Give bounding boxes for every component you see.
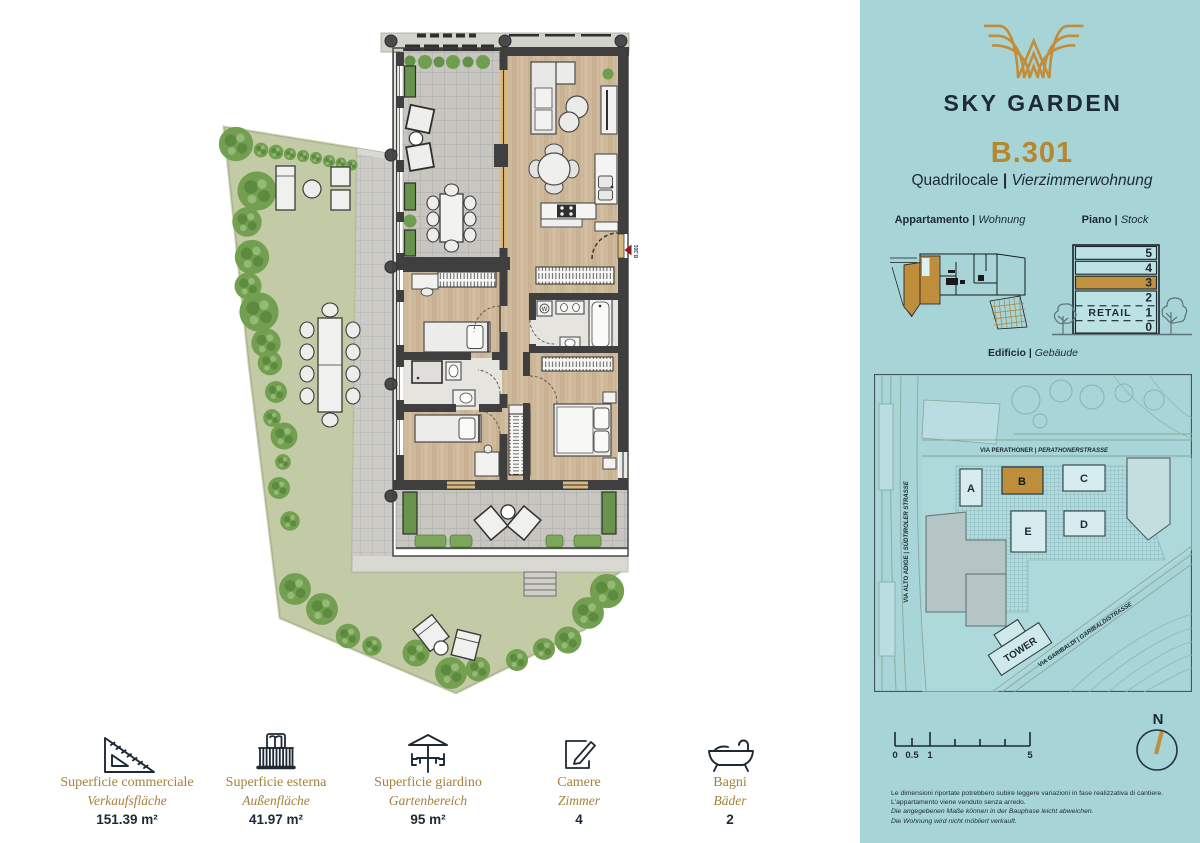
- svg-text:VIA PERATHONER | PERATHONERSTR: VIA PERATHONER | PERATHONERSTRASSE: [980, 448, 1109, 454]
- svg-text:E: E: [1024, 526, 1031, 538]
- svg-text:B.301: B.301: [634, 244, 640, 258]
- svg-text:0: 0: [892, 750, 897, 761]
- svg-text:5: 5: [1027, 750, 1033, 761]
- svg-text:0: 0: [1145, 320, 1152, 334]
- svg-text:D: D: [1080, 519, 1088, 531]
- svg-text:5: 5: [1145, 246, 1152, 260]
- svg-text:N: N: [1153, 711, 1164, 728]
- svg-text:B: B: [1018, 476, 1026, 488]
- svg-text:A: A: [967, 483, 975, 495]
- svg-text:C: C: [1080, 473, 1088, 485]
- svg-text:4: 4: [1145, 261, 1152, 275]
- svg-text:1: 1: [927, 750, 933, 761]
- svg-text:W: W: [542, 307, 548, 313]
- svg-text:RETAIL: RETAIL: [1088, 307, 1131, 319]
- svg-text:3: 3: [1145, 276, 1152, 290]
- svg-text:2: 2: [1145, 291, 1152, 305]
- svg-text:1: 1: [1145, 305, 1152, 319]
- svg-text:0.5: 0.5: [905, 750, 919, 761]
- svg-text:VIA ALTO ADIGE | SÜDTIROLER ST: VIA ALTO ADIGE | SÜDTIROLER STRASSE: [903, 480, 910, 602]
